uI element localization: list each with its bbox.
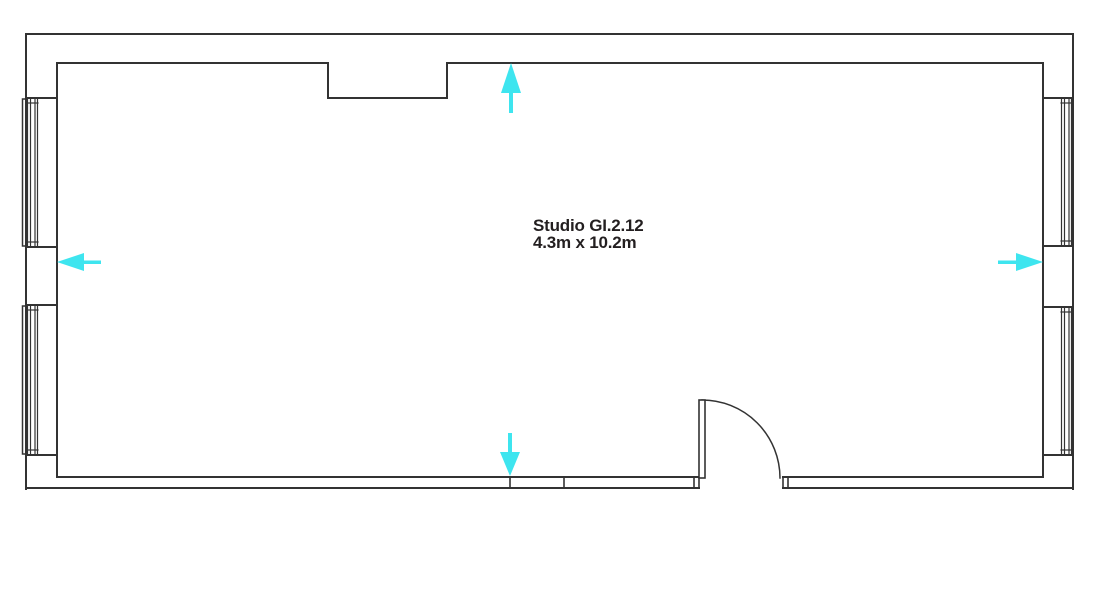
floorplan-svg: Studio GI.2.12 4.3m x 10.2m bbox=[0, 0, 1119, 596]
window-left-2 bbox=[23, 305, 58, 455]
door-swing-arc bbox=[702, 400, 780, 478]
window-left-1 bbox=[23, 98, 58, 247]
arrow-right-icon bbox=[998, 253, 1043, 271]
arrow-right-tail bbox=[998, 261, 1019, 265]
plan-linework bbox=[23, 34, 1074, 489]
inner-walls bbox=[57, 63, 1043, 477]
arrow-left-icon bbox=[57, 253, 101, 271]
door bbox=[699, 400, 780, 478]
arrow-down-head bbox=[500, 452, 520, 476]
arrow-down-tail bbox=[508, 433, 512, 455]
floorplan-canvas: Studio GI.2.12 4.3m x 10.2m bbox=[0, 0, 1119, 596]
door-leaf bbox=[699, 400, 705, 478]
bottom-wall-ticks bbox=[510, 477, 788, 488]
arrow-up-head bbox=[501, 63, 521, 93]
outer-walls bbox=[26, 34, 1073, 489]
inner-wall-top-with-recess bbox=[57, 63, 1043, 98]
direction-arrows bbox=[57, 63, 1043, 476]
window-right-1 bbox=[1043, 98, 1073, 246]
arrow-up-icon bbox=[501, 63, 521, 113]
arrow-left-tail bbox=[80, 261, 101, 265]
arrow-up-tail bbox=[509, 90, 513, 113]
room-label-group: Studio GI.2.12 4.3m x 10.2m bbox=[533, 216, 644, 252]
arrow-left-head bbox=[57, 253, 84, 271]
window-right-2 bbox=[1043, 307, 1073, 455]
arrow-right-head bbox=[1016, 253, 1043, 271]
room-dimensions: 4.3m x 10.2m bbox=[533, 233, 637, 252]
arrow-down-icon bbox=[500, 433, 520, 476]
